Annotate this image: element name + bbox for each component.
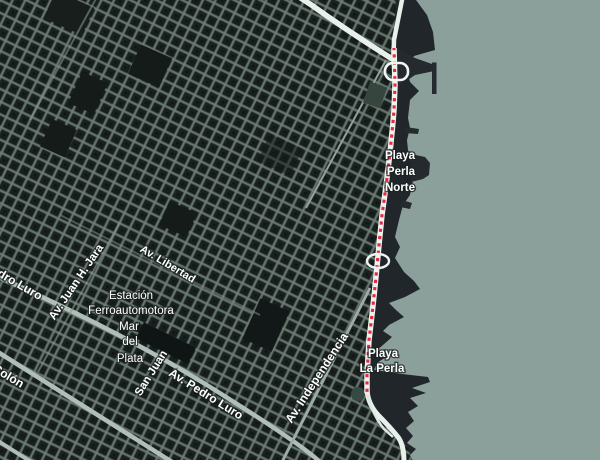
svg-text:La Perla: La Perla [360,363,405,375]
svg-text:Estación: Estación [109,290,153,302]
svg-text:Plata: Plata [117,353,144,365]
svg-text:del: del [122,336,137,348]
svg-text:Mar: Mar [119,321,139,333]
svg-text:Playa: Playa [368,348,399,360]
svg-text:Norte: Norte [385,182,415,194]
svg-text:Perla: Perla [387,166,416,178]
svg-text:Playa: Playa [385,150,416,162]
svg-text:Ferroautomotora: Ferroautomotora [88,305,174,317]
